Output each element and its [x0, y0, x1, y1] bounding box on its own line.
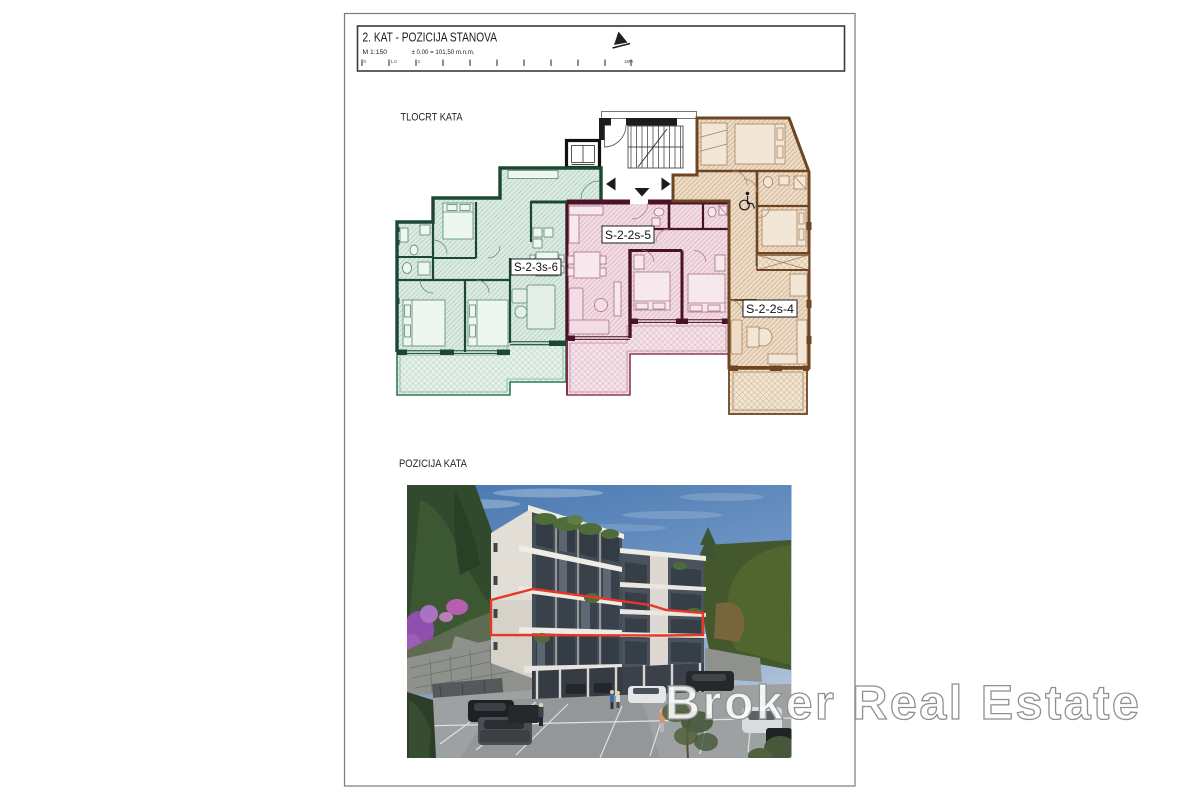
svg-text:Broker Real Estate: Broker Real Estate — [665, 676, 1141, 730]
svg-text:2. KAT - POZICIJA STANOVA: 2. KAT - POZICIJA STANOVA — [363, 31, 498, 45]
svg-text:S-2-3s-6: S-2-3s-6 — [514, 262, 558, 274]
svg-text:S-2-2s-5: S-2-2s-5 — [605, 228, 651, 242]
svg-text:POZICIJA KATA: POZICIJA KATA — [399, 458, 468, 470]
svg-text:TLOCRT KATA: TLOCRT KATA — [401, 112, 464, 124]
svg-text:15M: 15M — [624, 59, 633, 64]
svg-text:M 1:150: M 1:150 — [363, 49, 388, 56]
svg-text:S-2-2s-4: S-2-2s-4 — [746, 302, 794, 316]
svg-text:1.0: 1.0 — [391, 59, 398, 64]
svg-text:± 0.00 = 101,50 m.n.m.: ± 0.00 = 101,50 m.n.m. — [412, 49, 475, 56]
